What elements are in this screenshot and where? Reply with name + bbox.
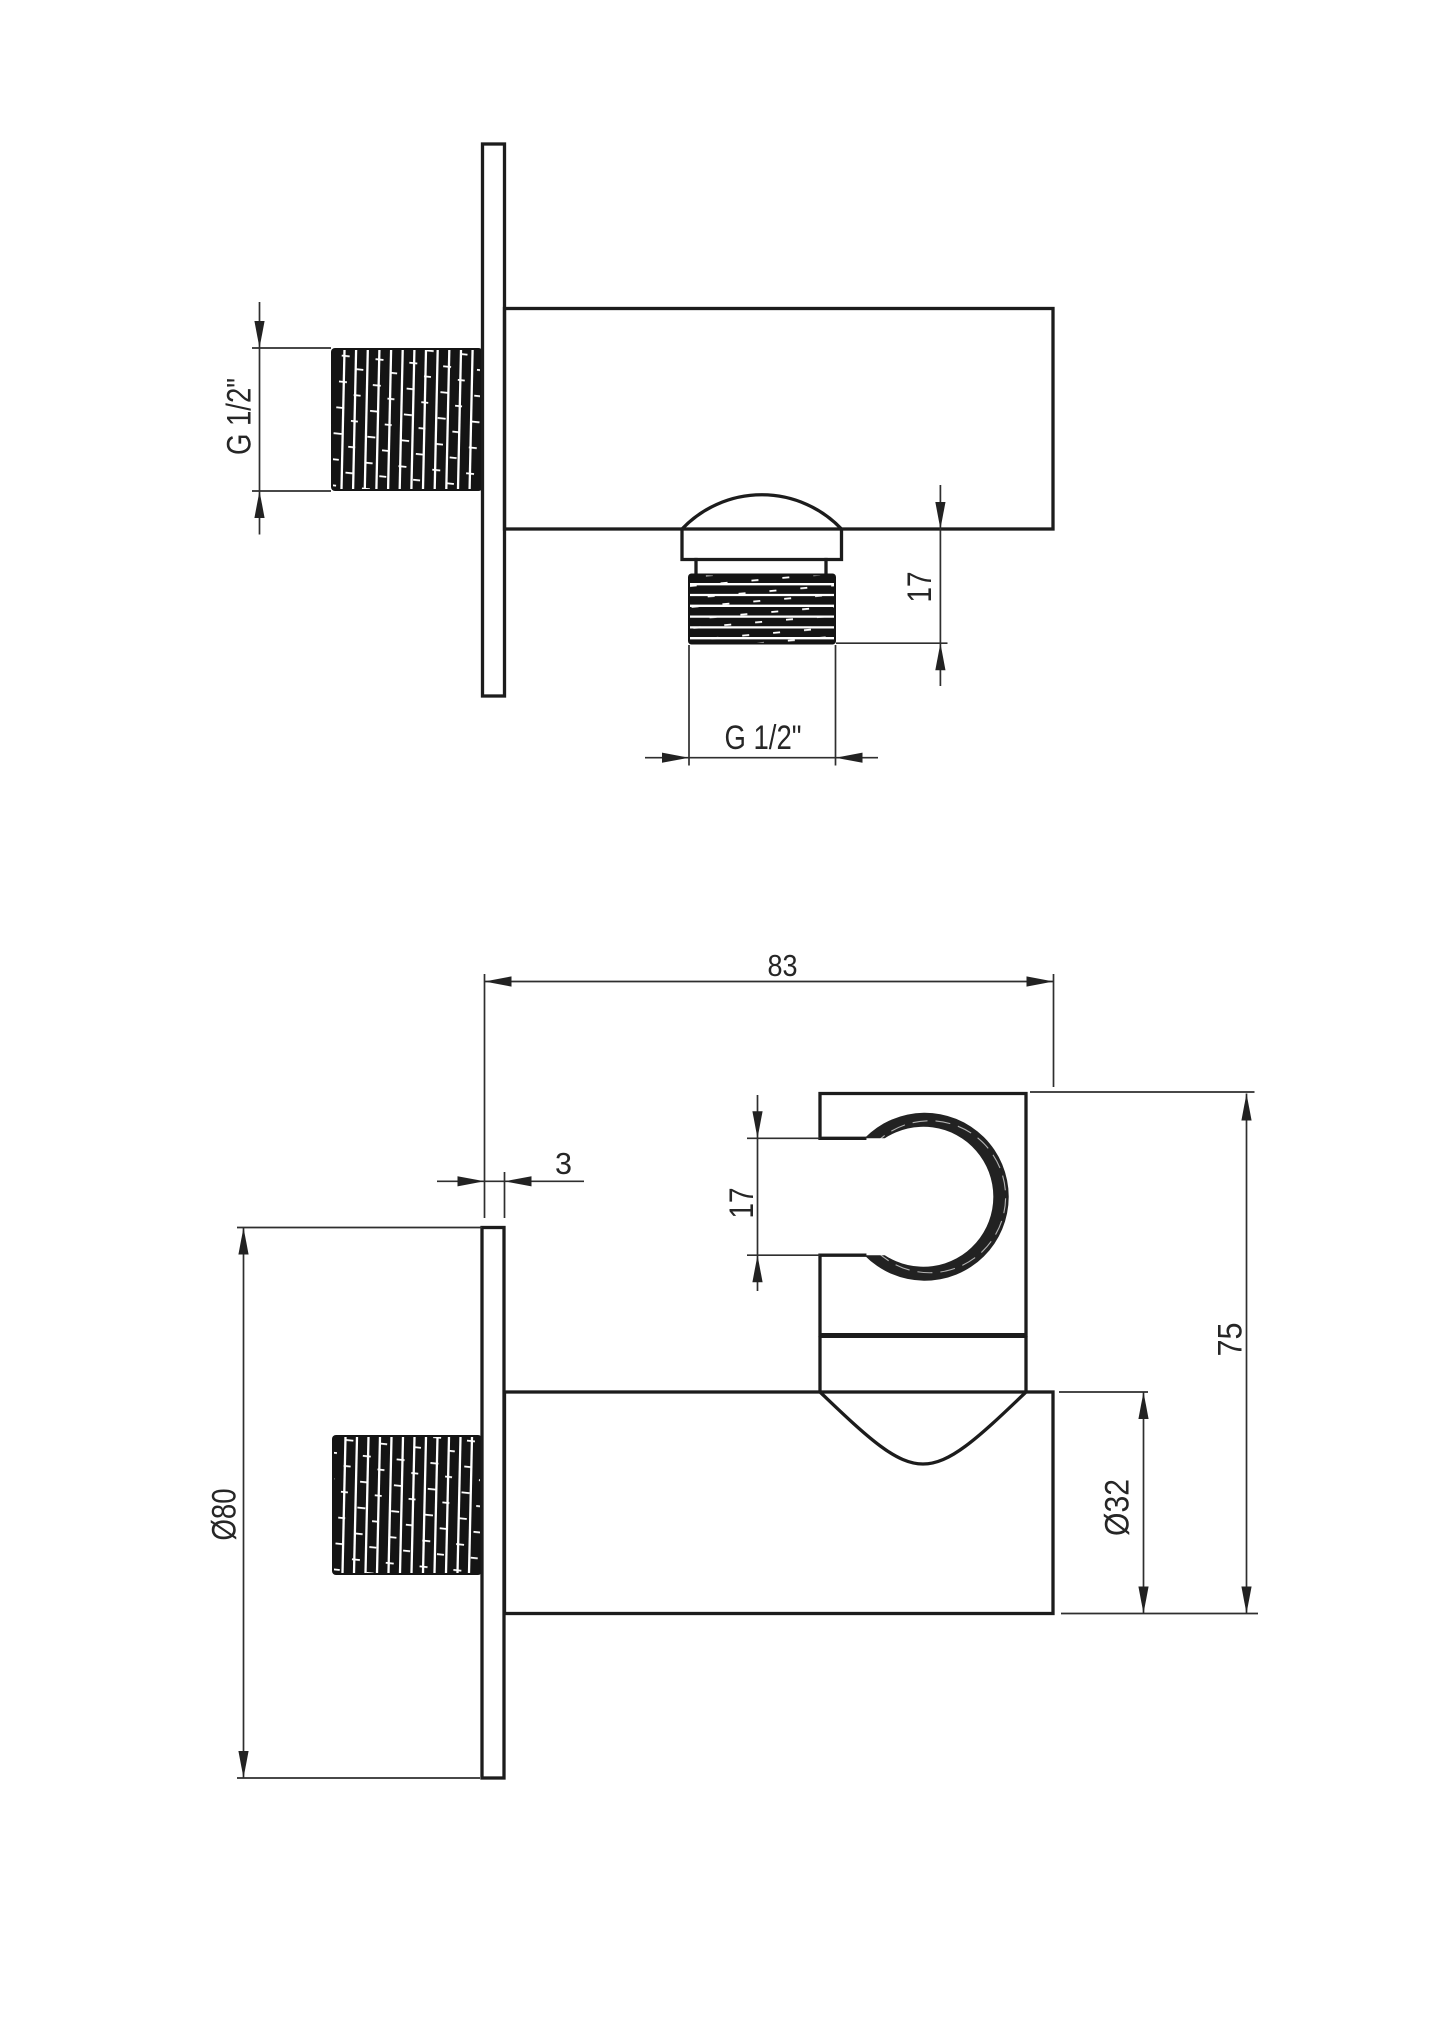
svg-text:Ø80: Ø80	[206, 1489, 244, 1541]
svg-text:G 1/2": G 1/2"	[221, 378, 259, 455]
svg-text:Ø32: Ø32	[1099, 1479, 1137, 1536]
svg-text:17: 17	[901, 572, 939, 603]
svg-text:3: 3	[555, 1146, 572, 1181]
svg-text:75: 75	[1212, 1323, 1250, 1357]
svg-text:83: 83	[768, 948, 798, 983]
svg-text:G 1/2": G 1/2"	[725, 719, 802, 757]
svg-text:17: 17	[723, 1188, 761, 1219]
